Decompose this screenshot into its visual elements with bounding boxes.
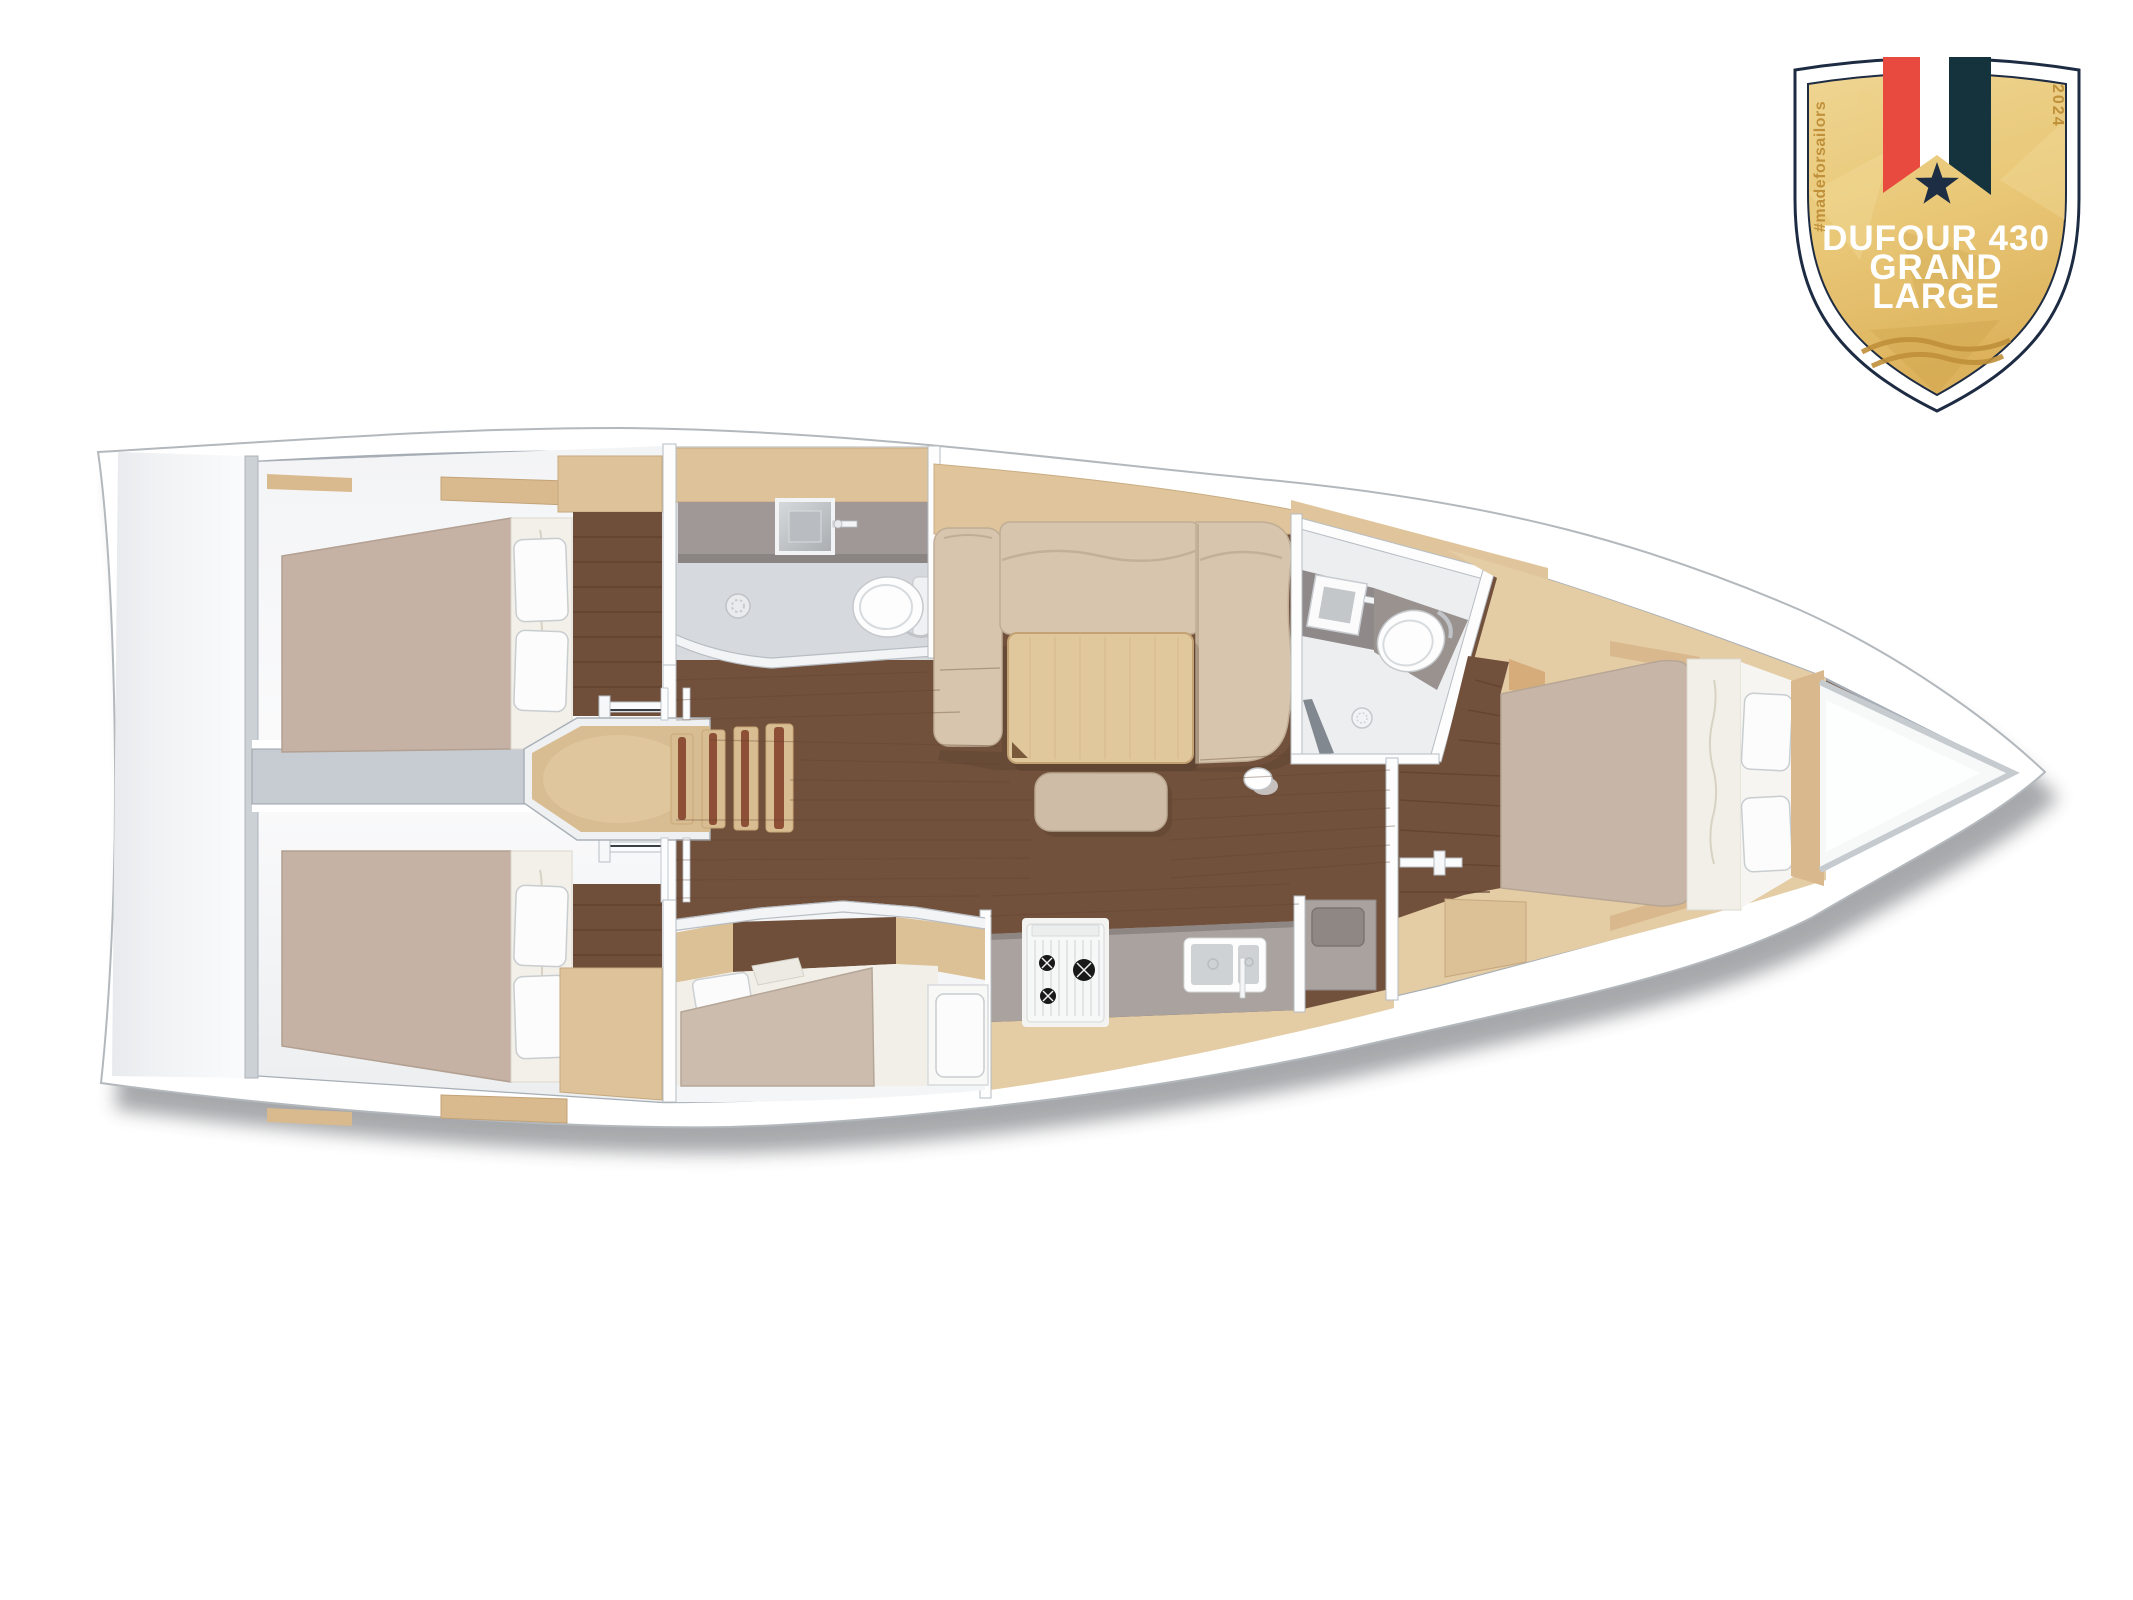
svg-text:LARGE: LARGE [1872,277,2000,316]
svg-text:2024: 2024 [2049,84,2066,128]
svg-text:#madeforsailors: #madeforsailors [1812,101,1829,232]
